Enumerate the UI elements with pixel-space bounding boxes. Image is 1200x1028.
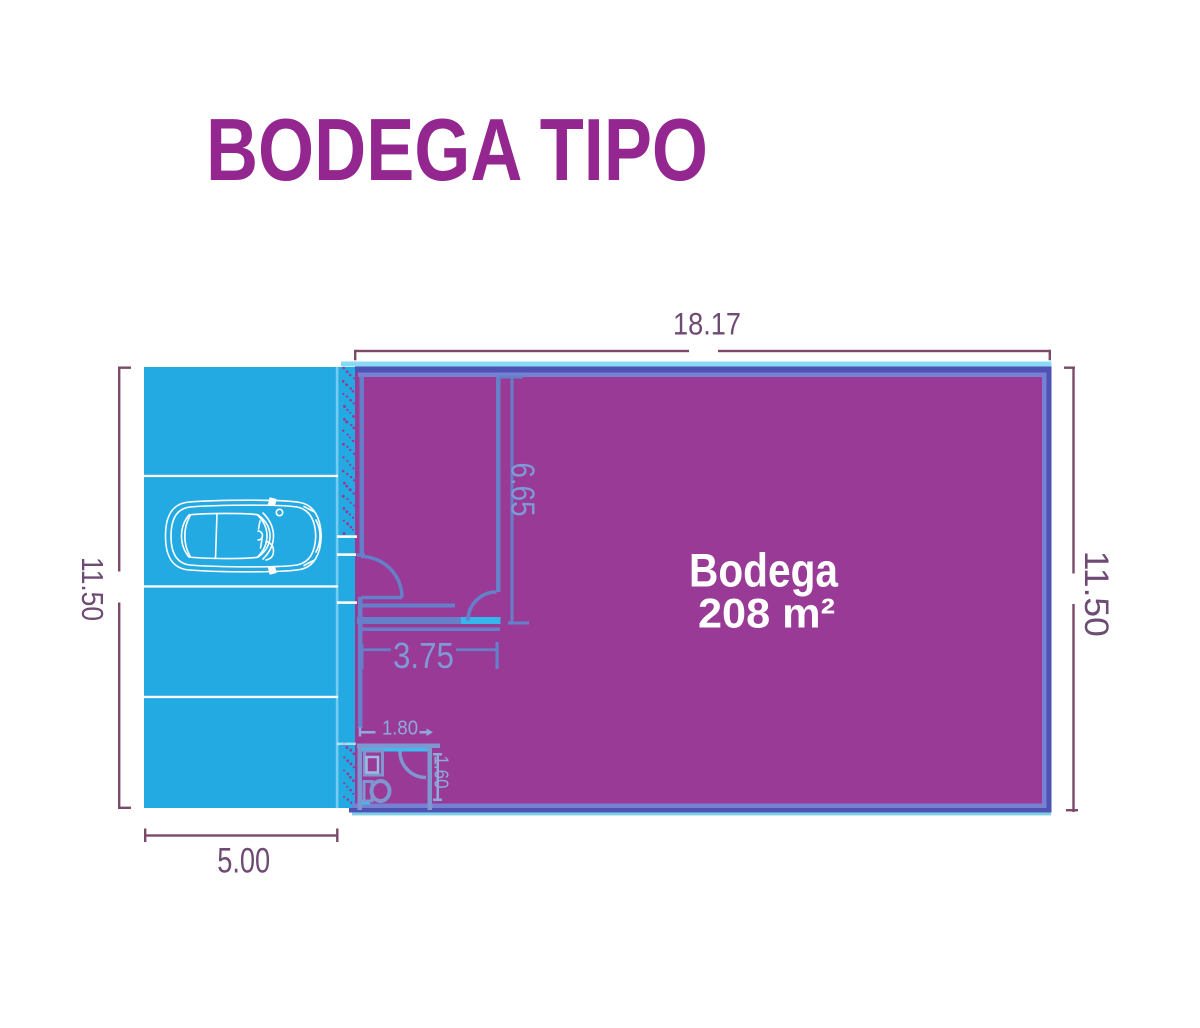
svg-text:6.65: 6.65 bbox=[504, 463, 541, 517]
svg-text:11.50: 11.50 bbox=[75, 557, 110, 621]
svg-text:208 m²: 208 m² bbox=[698, 590, 835, 637]
svg-text:5.00: 5.00 bbox=[217, 841, 270, 881]
svg-text:3.75: 3.75 bbox=[393, 635, 454, 676]
svg-text:BODEGA TIPO: BODEGA TIPO bbox=[206, 100, 708, 199]
svg-text:1.60: 1.60 bbox=[430, 756, 452, 789]
svg-text:1.80: 1.80 bbox=[382, 718, 418, 740]
svg-text:11.50: 11.50 bbox=[1077, 551, 1115, 637]
svg-text:18.17: 18.17 bbox=[673, 306, 741, 342]
